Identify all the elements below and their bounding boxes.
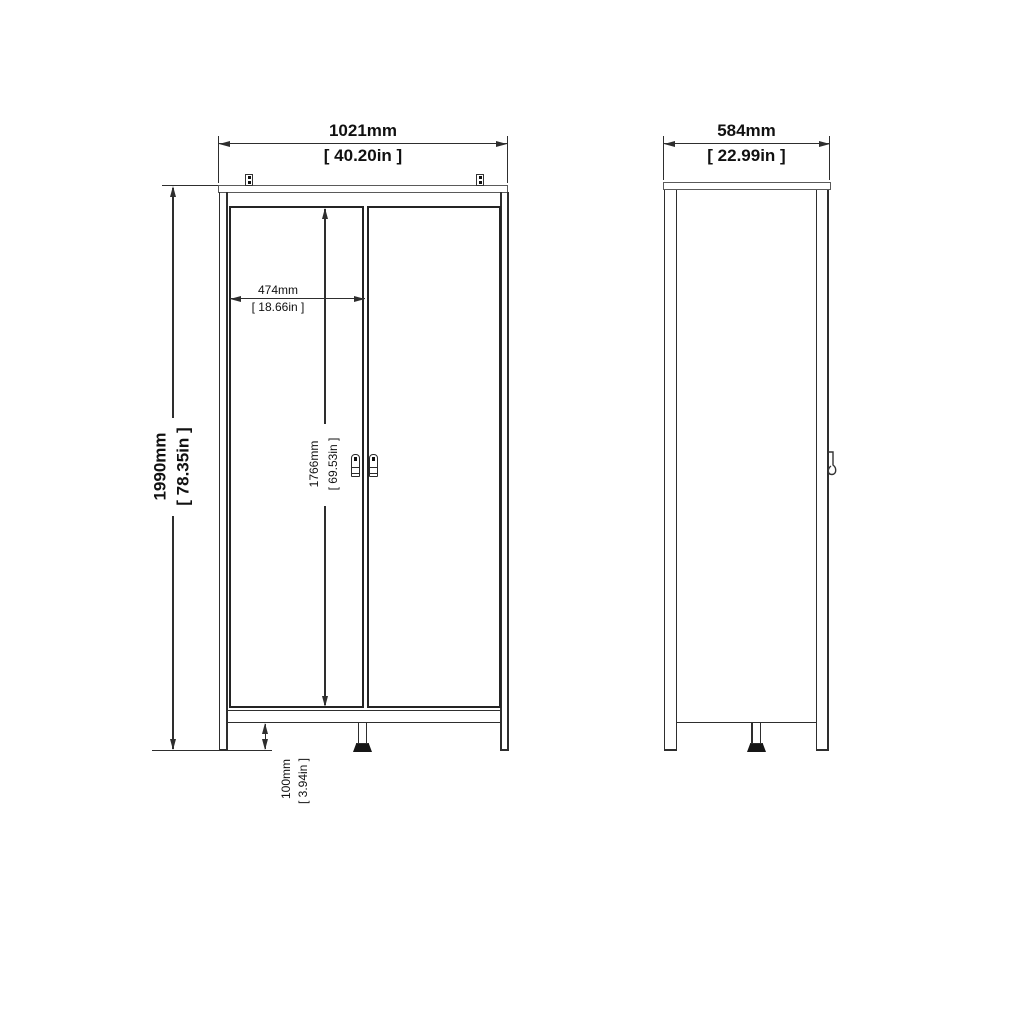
- side-front-inner-edge: [816, 190, 817, 750]
- front-width-dimension-line: [219, 143, 507, 144]
- left-door-handle: [351, 454, 360, 477]
- side-back-inner-edge: [676, 190, 677, 750]
- door-width-arrow-right: [354, 296, 365, 302]
- front-width-label-mm: 1021mm: [218, 122, 508, 139]
- front-height-label-mm: 1990mm: [152, 407, 169, 527]
- side-bottom-rail-edge: [677, 722, 816, 723]
- front-left-leg-bottom: [219, 749, 228, 750]
- leg-height-label-in: [ 3.94in ]: [297, 736, 309, 826]
- front-bottom-rail-top-edge: [227, 710, 501, 711]
- leg-height-arrow-bottom: [262, 739, 268, 750]
- handle-keyhole: [372, 457, 375, 461]
- wall-bracket-left: [245, 174, 253, 186]
- side-depth-arrow-right: [819, 141, 830, 147]
- front-top-panel: [218, 185, 508, 193]
- wardrobe-dimension-drawing: 1021mm [ 40.20in ] 1990mm [ 78.35in ]: [0, 0, 1024, 1024]
- door-height-dimension-line-upper: [324, 209, 325, 424]
- side-depth-label-in: [ 22.99in ]: [663, 147, 830, 164]
- side-front-leg-bottom: [816, 749, 829, 750]
- door-height-arrow-bottom: [322, 696, 328, 707]
- handle-keyhole: [354, 457, 357, 461]
- door-height-label-in: [ 69.53in ]: [327, 419, 339, 509]
- right-door-handle: [369, 454, 378, 477]
- front-width-arrow-left: [219, 141, 230, 147]
- side-depth-label-mm: 584mm: [663, 122, 830, 139]
- bracket-screw-bottom: [479, 181, 482, 184]
- side-back-outer-edge: [664, 190, 665, 750]
- front-width-arrow-right: [496, 141, 507, 147]
- front-right-panel-outer-edge: [507, 192, 508, 750]
- right-door: [367, 206, 501, 708]
- front-bottom-rail-bottom-edge: [227, 722, 501, 724]
- side-center-leg-left-edge: [751, 723, 752, 743]
- leg-height-arrow-top: [262, 723, 268, 734]
- front-left-panel-inner-edge: [226, 192, 227, 750]
- handle-band: [352, 467, 359, 474]
- side-handle-profile-icon: [822, 448, 838, 480]
- bracket-screw-top: [479, 176, 482, 179]
- bracket-screw-bottom: [248, 181, 251, 184]
- door-width-label-in: [ 18.66in ]: [218, 301, 338, 313]
- left-door: [229, 206, 364, 708]
- door-height-label-mm: 1766mm: [308, 419, 320, 509]
- side-adjustable-foot: [747, 744, 766, 752]
- front-height-arrow-top: [170, 186, 176, 197]
- front-height-dimension-line-upper: [172, 188, 173, 418]
- door-height-dimension-line-lower: [324, 506, 325, 705]
- side-depth-arrow-left: [664, 141, 675, 147]
- front-width-label-in: [ 40.20in ]: [218, 147, 508, 164]
- handle-band: [370, 467, 377, 474]
- front-right-panel-inner-edge: [500, 192, 501, 750]
- door-height-arrow-top: [322, 208, 328, 219]
- leg-height-label-mm: 100mm: [280, 734, 292, 824]
- front-right-leg-bottom: [500, 749, 508, 750]
- side-back-leg-bottom: [664, 749, 677, 750]
- front-center-leg-right-edge: [366, 723, 367, 743]
- door-width-label-mm: 474mm: [218, 284, 338, 296]
- side-center-leg-right-edge: [760, 723, 761, 743]
- front-height-arrow-bottom: [170, 739, 176, 750]
- front-height-label-in: [ 78.35in ]: [175, 407, 192, 527]
- door-width-dimension-line: [230, 298, 365, 299]
- side-top-panel: [663, 182, 831, 191]
- front-left-panel-outer-edge: [219, 192, 220, 750]
- front-height-dimension-line-lower: [172, 516, 173, 749]
- wall-bracket-right: [476, 174, 484, 186]
- front-adjustable-foot: [353, 744, 372, 752]
- side-depth-dimension-line: [664, 143, 830, 144]
- front-center-leg-left-edge: [358, 723, 359, 743]
- bracket-screw-top: [248, 176, 251, 179]
